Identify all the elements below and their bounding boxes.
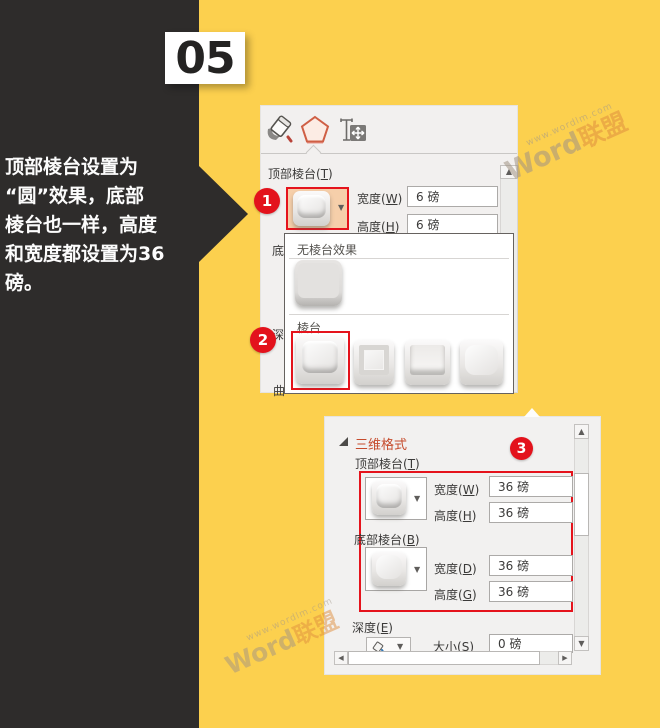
scroll-down-icon: ▼ bbox=[578, 640, 584, 648]
width-label: 宽度(W) bbox=[357, 190, 402, 207]
watermark-brand: Word bbox=[221, 624, 300, 681]
bevel-circle-preview bbox=[372, 552, 406, 586]
no-bevel-header: 无棱台效果 bbox=[297, 241, 357, 258]
v-scrollbar-track[interactable] bbox=[574, 424, 589, 651]
top-height-input[interactable]: 36 磅 bbox=[489, 502, 573, 523]
section-title-3d-format[interactable]: 三维格式 bbox=[355, 434, 407, 453]
h-scroll-left-button[interactable]: ◀ bbox=[334, 651, 348, 665]
top-width-label: 宽度(W) bbox=[434, 481, 479, 498]
caption-line: 磅。 bbox=[5, 269, 199, 298]
caption-line: 和宽度都设置为36 bbox=[5, 240, 199, 269]
chevron-down-icon: ▼ bbox=[414, 495, 420, 503]
v-scroll-up-button[interactable]: ▲ bbox=[574, 424, 589, 439]
divider bbox=[289, 314, 509, 315]
bevel-gallery-dropdown: 无棱台效果 棱台 bbox=[284, 233, 514, 394]
caption-arrow bbox=[199, 166, 248, 262]
top-bevel-label: 顶部棱台(T) bbox=[355, 455, 420, 472]
width-input[interactable]: 6 磅 bbox=[407, 186, 498, 207]
divider bbox=[289, 258, 509, 259]
bevel-circle-preview bbox=[293, 191, 330, 226]
top-bevel-label: 顶部棱台(T) bbox=[268, 165, 333, 182]
caption-line: 棱台也一样，高度 bbox=[5, 211, 199, 240]
bevel-thumb-none[interactable] bbox=[295, 260, 342, 306]
bottom-width-input[interactable]: 36 磅 bbox=[489, 555, 573, 576]
bottom-bevel-dropdown-button[interactable]: ▼ bbox=[365, 547, 427, 591]
annotation-circle-3: 3 bbox=[510, 437, 533, 460]
v-scroll-down-button[interactable]: ▼ bbox=[574, 636, 589, 651]
caption-line: 顶部棱台设置为 bbox=[5, 153, 199, 182]
tab-separator bbox=[261, 153, 517, 154]
step-number-badge: 05 bbox=[165, 32, 245, 84]
h-scrollbar-thumb[interactable] bbox=[348, 651, 540, 665]
bevel-thumb-cross[interactable] bbox=[354, 340, 394, 385]
balloon-notch bbox=[524, 408, 540, 417]
bevel-circle-preview bbox=[372, 481, 406, 515]
scroll-right-icon: ▶ bbox=[562, 655, 567, 662]
watermark-url: www.wordlm.com bbox=[525, 99, 620, 149]
watermark-brand-cn: 联盟 bbox=[574, 107, 631, 154]
top-width-input[interactable]: 36 磅 bbox=[489, 476, 573, 497]
bottom-width-label: 宽度(D) bbox=[434, 560, 477, 577]
layout-size-icon bbox=[339, 128, 367, 147]
left-dark-panel bbox=[0, 0, 199, 728]
tab-layout-properties[interactable] bbox=[339, 117, 367, 143]
top-bevel-dropdown-button[interactable]: ▼ bbox=[365, 477, 427, 520]
tab-effects-selected[interactable] bbox=[300, 115, 330, 145]
annotation-box-1: ▼ bbox=[286, 187, 349, 230]
annotation-box-2 bbox=[291, 331, 350, 390]
section-expand-triangle-icon[interactable] bbox=[339, 437, 348, 446]
scroll-up-icon: ▲ bbox=[506, 168, 512, 176]
tutorial-step-image: 05 顶部棱台设置为 “圆”效果，底部 棱台也一样，高度 和宽度都设置为36 磅… bbox=[0, 0, 660, 728]
clipped-bottom-bevel-label: 底 bbox=[272, 242, 284, 259]
chevron-down-icon: ▼ bbox=[414, 566, 420, 574]
top-bevel-dropdown-button[interactable]: ▼ bbox=[288, 189, 347, 228]
v-scrollbar-thumb[interactable] bbox=[574, 473, 589, 536]
format-pane-screenshot: 顶部棱台(T) ▼ 宽度(W) 6 磅 高度(H) 6 磅 ▲ 底 深 曲 无棱… bbox=[260, 105, 518, 393]
tab-fill-line[interactable] bbox=[264, 112, 296, 144]
depth-label: 深度(E) bbox=[352, 619, 393, 636]
pane-scroll-up-button[interactable]: ▲ bbox=[500, 165, 518, 179]
scroll-left-icon: ◀ bbox=[338, 655, 343, 662]
step-caption: 顶部棱台设置为 “圆”效果，底部 棱台也一样，高度 和宽度都设置为36 磅。 bbox=[5, 153, 199, 298]
top-height-label: 高度(H) bbox=[434, 507, 476, 524]
bottom-height-input[interactable]: 36 磅 bbox=[489, 581, 573, 602]
chevron-down-icon: ▼ bbox=[338, 204, 344, 212]
bevel-thumb-circle-selected[interactable] bbox=[296, 336, 344, 384]
watermark-url: www.wordlm.com bbox=[245, 596, 335, 643]
bottom-bevel-label: 底部棱台(B) bbox=[354, 531, 420, 548]
bevel-thumb-round[interactable] bbox=[460, 340, 503, 385]
fill-bucket-icon bbox=[264, 129, 296, 148]
annotation-circle-2: 2 bbox=[250, 327, 276, 353]
chevron-down-icon: ▼ bbox=[397, 643, 403, 651]
annotation-circle-1: 1 bbox=[254, 188, 280, 214]
bottom-height-label: 高度(G) bbox=[434, 586, 477, 603]
caption-line: “圆”效果，底部 bbox=[5, 182, 199, 211]
three-d-format-screenshot: 三维格式 顶部棱台(T) ▼ 宽度(W) 36 磅 高度(H) 36 磅 底部棱… bbox=[324, 416, 601, 675]
h-scroll-right-button[interactable]: ▶ bbox=[558, 651, 572, 665]
scroll-up-icon: ▲ bbox=[578, 428, 584, 436]
bevel-thumb-slant[interactable] bbox=[405, 340, 450, 385]
height-input[interactable]: 6 磅 bbox=[407, 214, 498, 235]
